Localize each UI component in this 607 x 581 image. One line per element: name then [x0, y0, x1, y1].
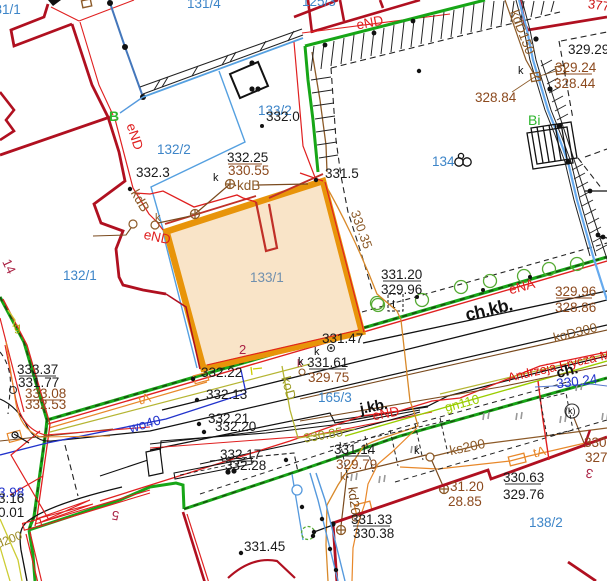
svg-text:k: k	[155, 212, 161, 224]
svg-text:332.13: 332.13	[206, 387, 247, 402]
svg-text:330.6: 330.6	[584, 435, 607, 450]
svg-text:330.55: 330.55	[228, 163, 269, 178]
svg-text:3.16: 3.16	[0, 491, 24, 506]
svg-text:(k): (k)	[565, 406, 576, 416]
svg-text:k: k	[298, 356, 304, 368]
svg-text:28.85: 28.85	[448, 494, 482, 509]
svg-text:31.20: 31.20	[450, 479, 484, 494]
svg-text:132/2: 132/2	[157, 142, 191, 157]
svg-text:0.01: 0.01	[0, 505, 24, 520]
svg-text:329.24: 329.24	[555, 60, 597, 75]
svg-text:330.38: 330.38	[353, 526, 394, 541]
svg-text:331.33: 331.33	[351, 512, 392, 527]
svg-text:329.29: 329.29	[568, 42, 607, 57]
svg-text:131/1: 131/1	[0, 2, 21, 17]
svg-text:329.79: 329.79	[336, 457, 377, 472]
svg-text:132/1: 132/1	[63, 268, 97, 283]
svg-text:332.22: 332.22	[201, 365, 242, 380]
svg-text:B: B	[109, 108, 119, 124]
svg-text:131/4: 131/4	[187, 0, 221, 11]
svg-text:332.3: 332.3	[136, 165, 170, 180]
svg-text:328.84: 328.84	[475, 90, 517, 105]
svg-text:kdB: kdB	[237, 178, 260, 193]
svg-text:k: k	[518, 65, 524, 77]
svg-text:328.44: 328.44	[554, 76, 596, 91]
svg-text:331.5: 331.5	[325, 166, 359, 181]
svg-text:332.28: 332.28	[225, 458, 266, 473]
svg-text:330.63: 330.63	[503, 470, 544, 485]
svg-text:331.47: 331.47	[322, 331, 363, 346]
svg-text:329.96: 329.96	[555, 284, 596, 299]
svg-text:331.45: 331.45	[244, 539, 285, 554]
svg-text:329.76: 329.76	[503, 487, 544, 502]
svg-text:2: 2	[239, 342, 246, 357]
svg-text:k: k	[340, 471, 346, 483]
svg-text:327.9: 327.9	[585, 450, 607, 465]
svg-text:328.86: 328.86	[555, 300, 596, 315]
svg-text:331.61: 331.61	[307, 355, 348, 370]
svg-text:k: k	[414, 445, 420, 457]
svg-text:329.96: 329.96	[381, 282, 422, 297]
svg-text:125/3: 125/3	[302, 0, 336, 9]
svg-text:133/1: 133/1	[250, 270, 284, 285]
svg-text:138/2: 138/2	[529, 515, 563, 530]
svg-text:332.20: 332.20	[215, 419, 256, 434]
svg-text:Bi: Bi	[528, 112, 540, 128]
svg-text:332.0: 332.0	[266, 109, 300, 124]
svg-text:165/3: 165/3	[318, 390, 352, 405]
svg-text:329.75: 329.75	[308, 370, 349, 385]
svg-text:332.53: 332.53	[25, 397, 66, 412]
svg-text:331.14: 331.14	[334, 442, 376, 457]
svg-text:k: k	[213, 172, 219, 184]
svg-text:331.20: 331.20	[381, 267, 422, 282]
svg-text:134: 134	[432, 154, 455, 169]
